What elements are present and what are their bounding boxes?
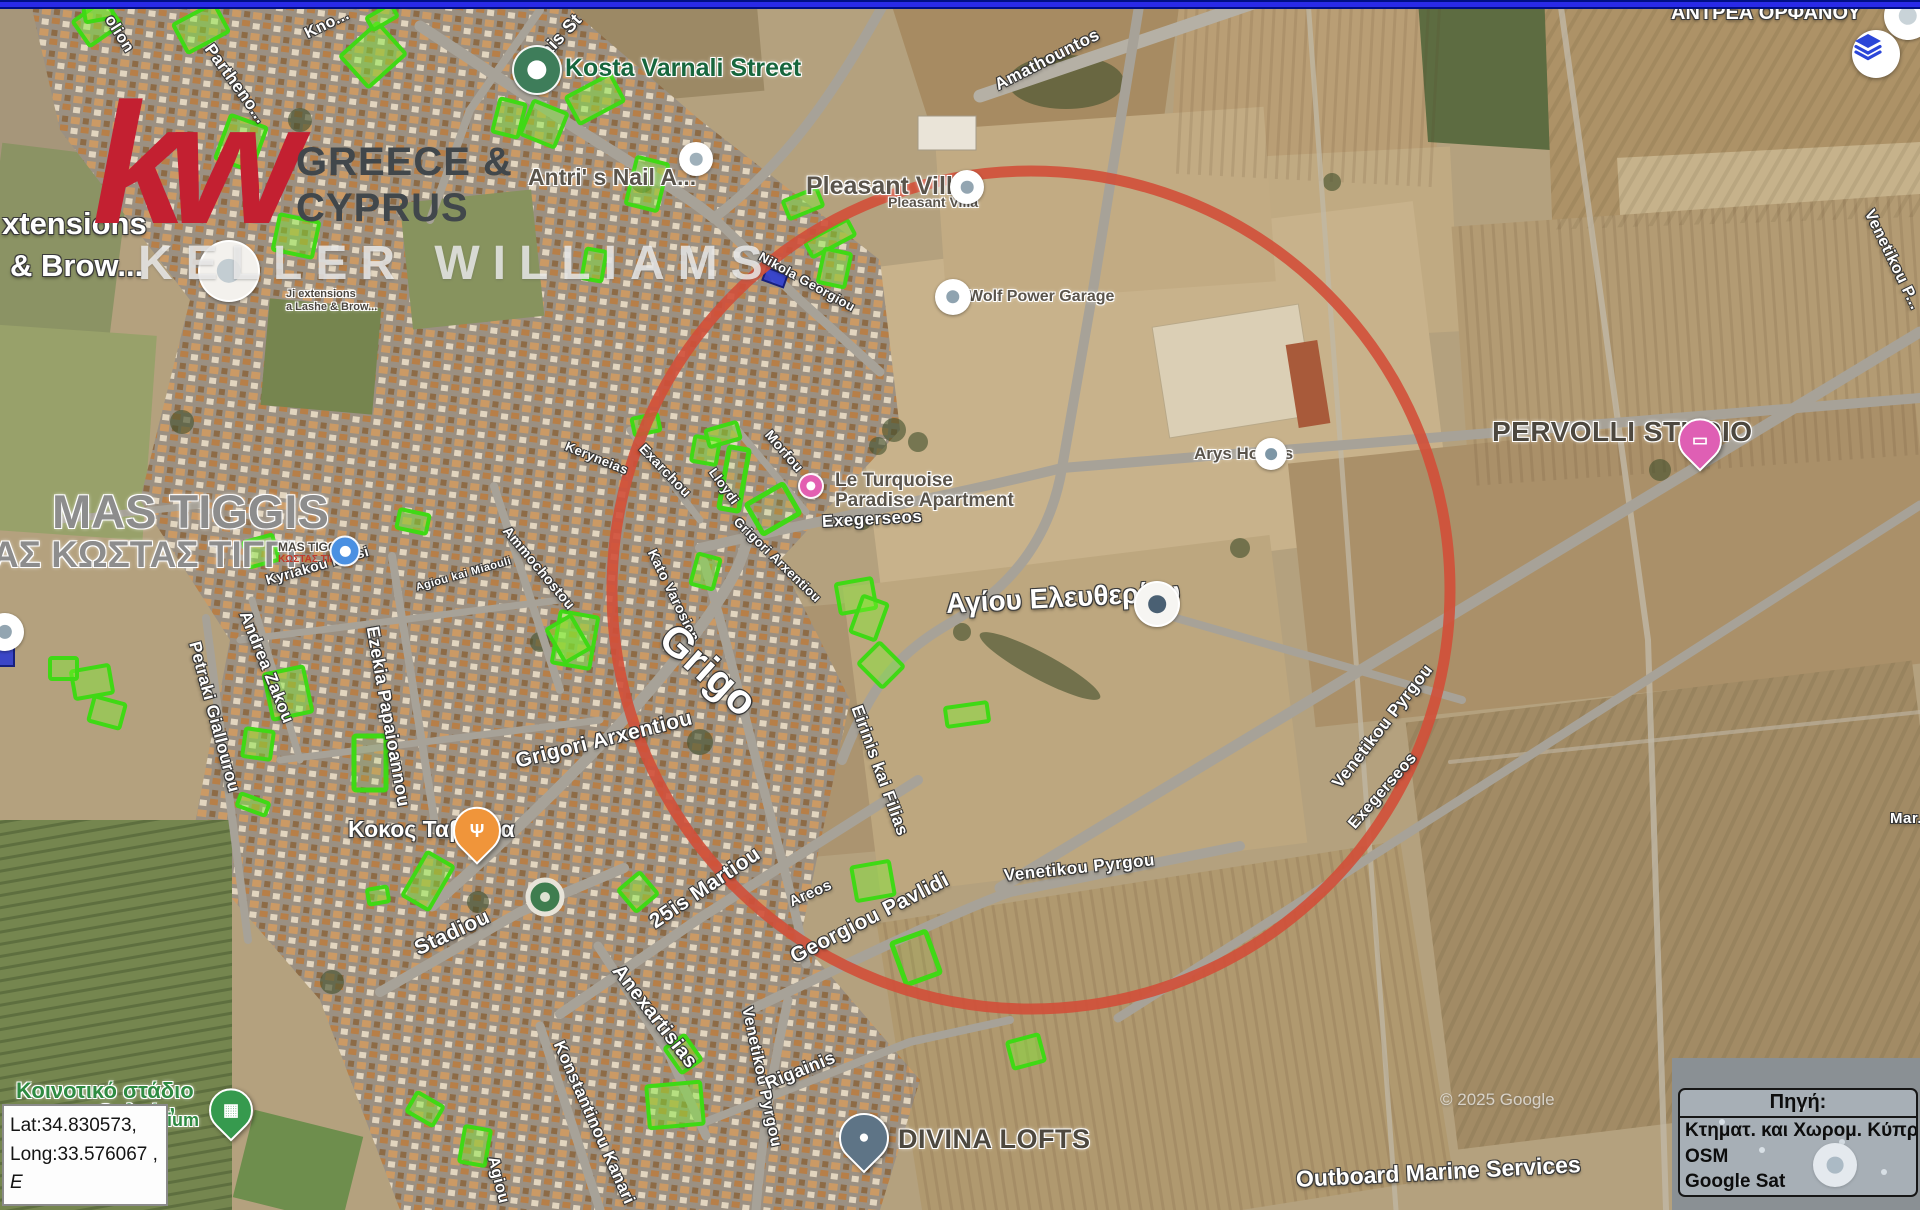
top-bar [0, 0, 1920, 9]
property-plot[interactable] [1007, 1034, 1045, 1068]
longitude-value: Long:33.576067 , [10, 1141, 162, 1170]
property-plot[interactable] [88, 696, 125, 728]
watermark-cyprus: CYPRUS [296, 186, 469, 231]
kosta-varnali-street-marker[interactable] [512, 45, 562, 95]
property-plot[interactable] [243, 535, 279, 568]
marker-dot [946, 290, 959, 303]
marker-dot [0, 625, 12, 639]
arys-homes-marker[interactable] [1255, 438, 1287, 470]
property-plot[interactable] [945, 702, 989, 727]
agiou-eleftheriou-church-marker[interactable] [1134, 581, 1180, 627]
property-plot[interactable] [354, 736, 386, 790]
property-plot[interactable] [851, 861, 894, 901]
marker-dot [527, 60, 546, 79]
stadium-icon: ▦ [211, 1090, 251, 1130]
marker-dot [961, 181, 974, 194]
marker-dot [806, 481, 815, 490]
bed-icon: ▭ [1680, 420, 1720, 460]
antris-nail-marker[interactable] [679, 142, 713, 176]
watermark-keller-williams: KELLER WILLIAMS [138, 236, 776, 291]
source-title: Πηγή: [1680, 1090, 1916, 1118]
hemisphere-value: E [10, 1169, 162, 1198]
property-plot[interactable] [646, 1082, 703, 1129]
source-line-google-sat: Google Sat [1680, 1169, 1916, 1195]
mas-tiggis-marker[interactable] [330, 536, 361, 567]
kw-logo: kw [92, 78, 281, 250]
property-plot[interactable] [818, 249, 851, 288]
property-plot[interactable] [632, 413, 661, 435]
utensils-icon: Ψ [455, 809, 499, 853]
marker-dot [1899, 7, 1917, 25]
marker-dot [1265, 448, 1277, 460]
property-plot[interactable] [264, 666, 313, 719]
property-plot[interactable] [396, 509, 429, 534]
property-plot[interactable] [50, 658, 77, 679]
coordinates-box: Lat:34.830573, Long:33.576067 , E [2, 1104, 168, 1206]
watermark-greece: GREECE & [296, 140, 513, 185]
roundabout [528, 880, 562, 914]
pleasant-villa-marker[interactable] [950, 170, 984, 204]
le-turquoise-marker[interactable] [798, 473, 824, 499]
source-line-osm: OSM [1680, 1144, 1916, 1170]
marker-dot [339, 545, 350, 556]
marker-dot [690, 153, 703, 166]
property-plot[interactable] [242, 728, 274, 760]
circle-icon: ● [841, 1115, 887, 1161]
marker-dot [1148, 595, 1166, 613]
wolf-power-garage-marker[interactable] [935, 279, 971, 315]
property-plot[interactable] [459, 1126, 491, 1166]
latitude-value: Lat:34.830573, [10, 1112, 162, 1141]
source-leg-box: Πηγή: Κτηματ. και Χωρομ. Κύπρου OSM Goog… [1678, 1088, 1918, 1197]
map-viewport[interactable]: olionPartheno...Kno...pais StAmathountos… [0, 0, 1920, 1210]
property-plot[interactable] [690, 554, 720, 590]
property-plot[interactable] [367, 886, 389, 904]
layers-button[interactable] [1852, 30, 1900, 78]
source-line-cadastre: Κτηματ. και Χωρομ. Κύπρου [1680, 1118, 1916, 1144]
